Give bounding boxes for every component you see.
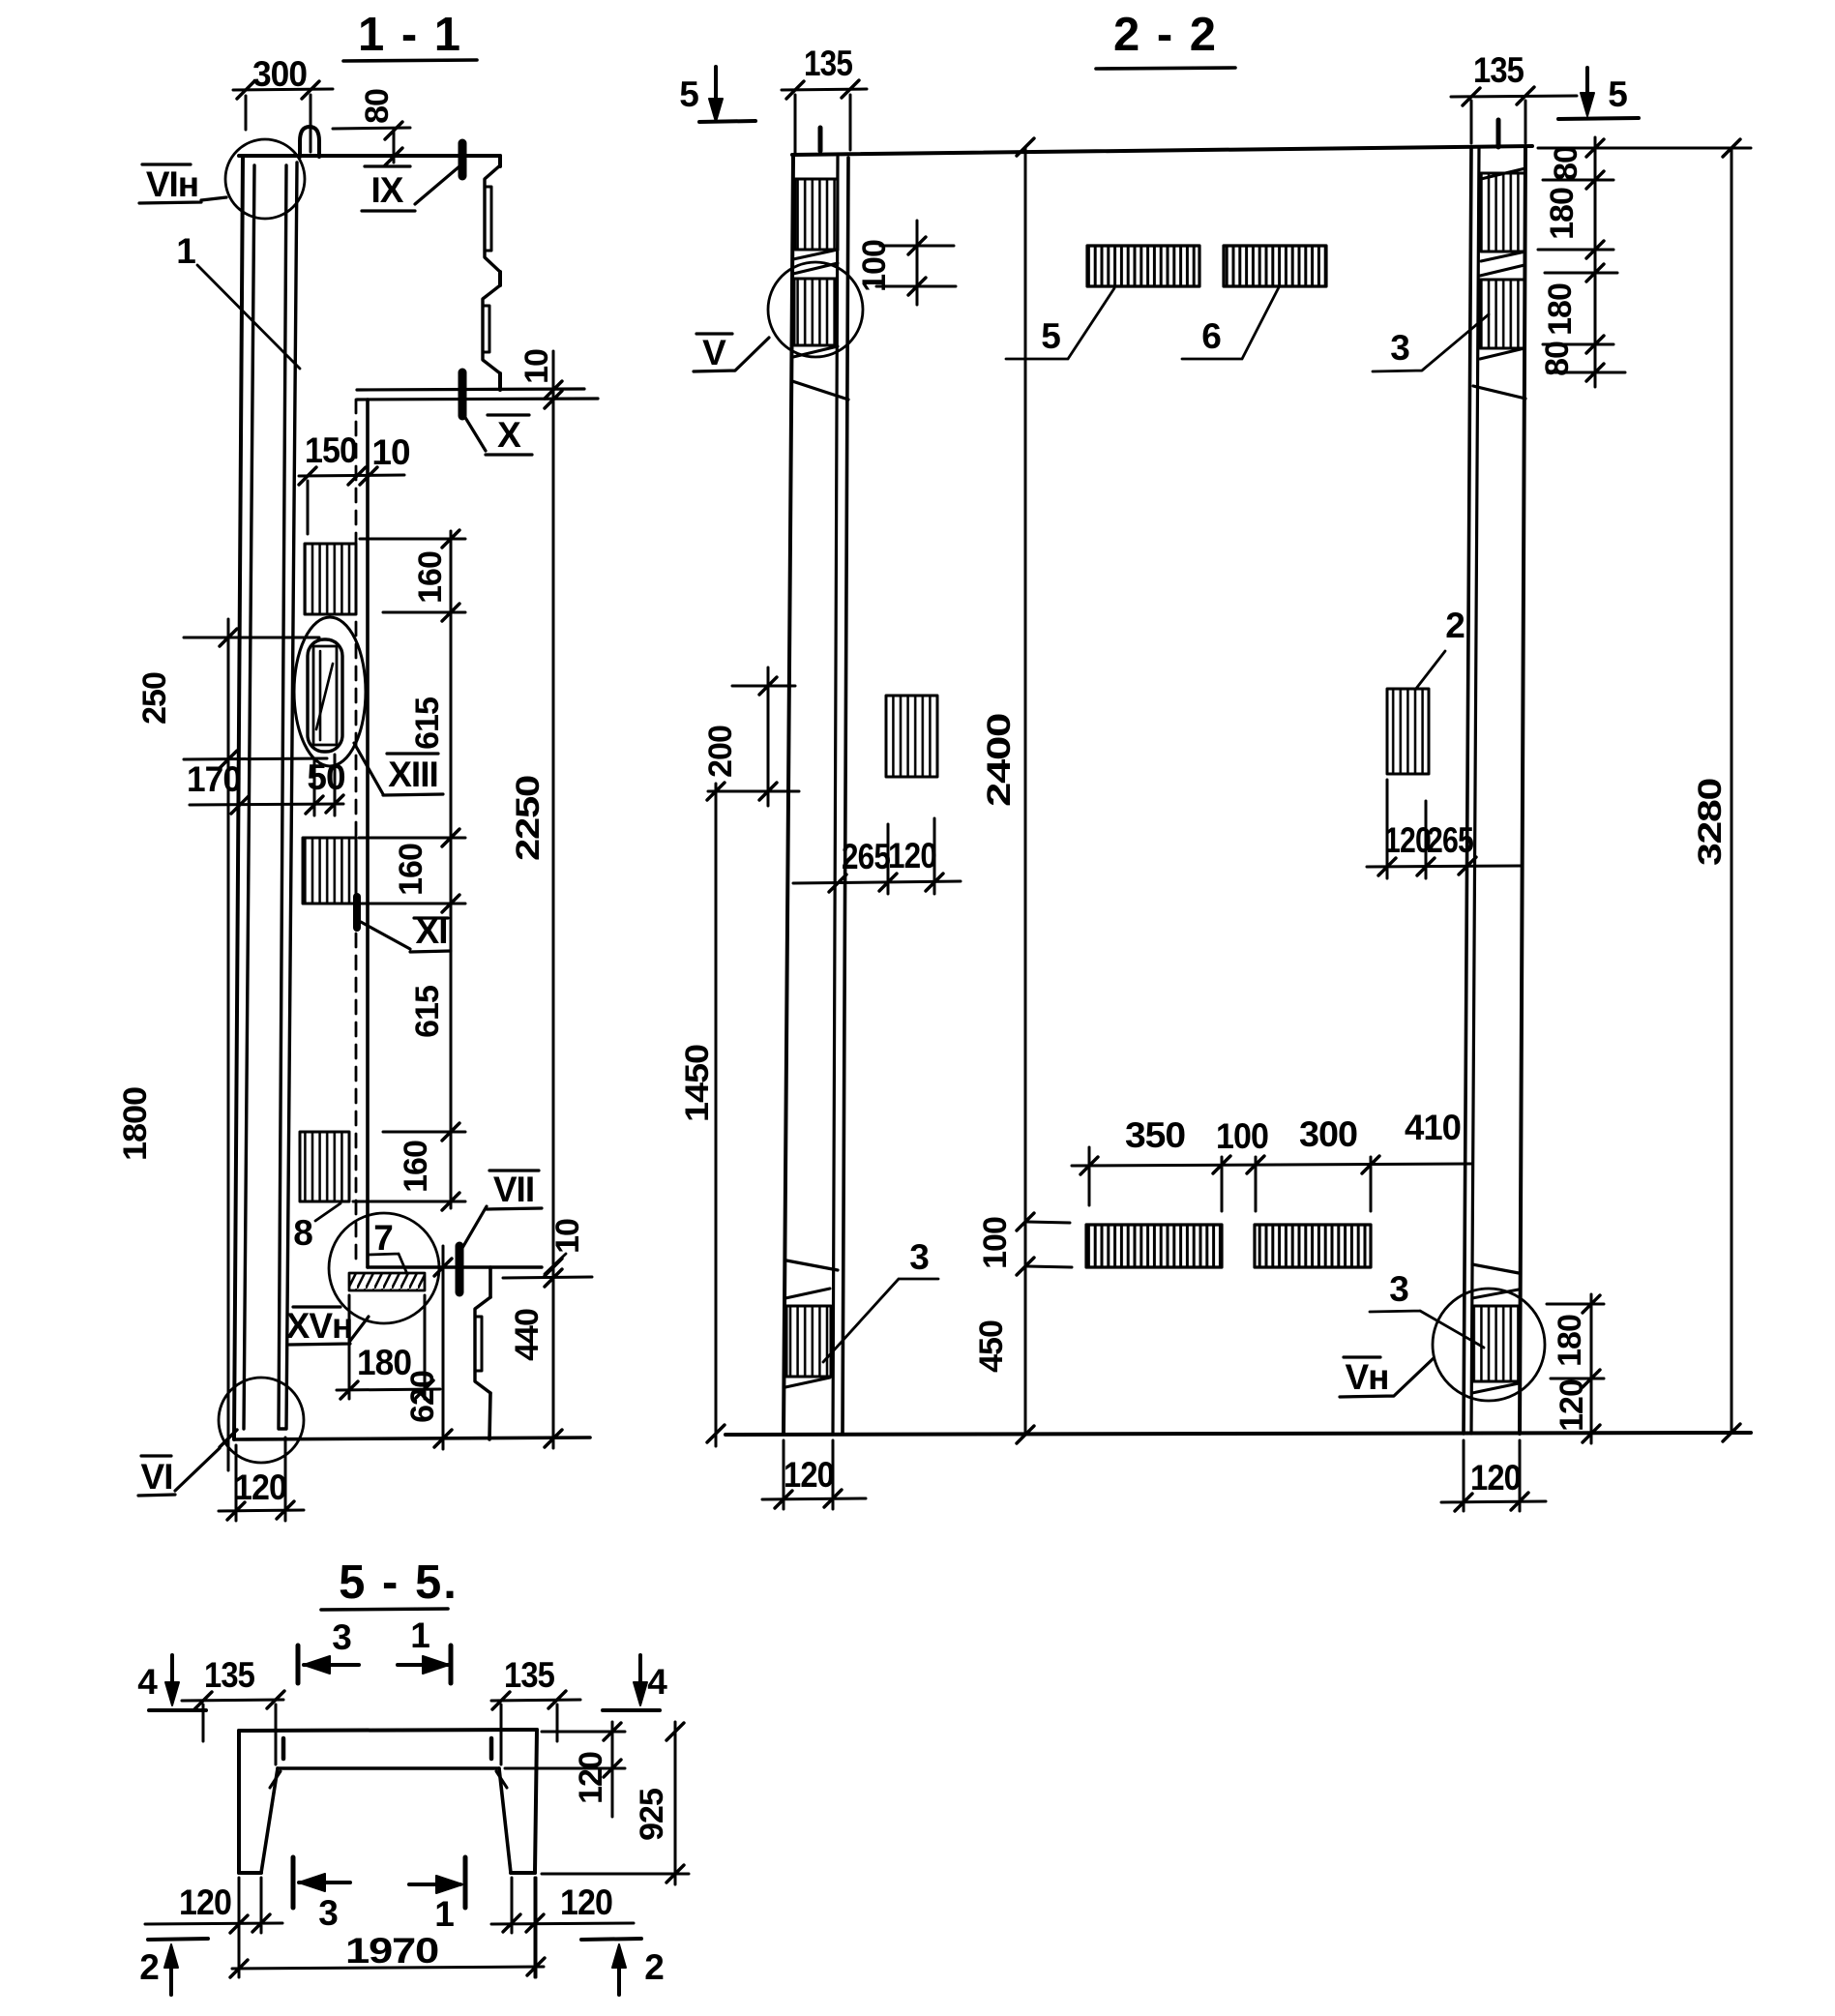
svg-text:6: 6 xyxy=(1201,316,1221,356)
svg-text:3: 3 xyxy=(909,1237,929,1277)
svg-text:3: 3 xyxy=(1390,328,1409,368)
svg-text:120: 120 xyxy=(560,1883,612,1922)
svg-text:1 - 1: 1 - 1 xyxy=(358,9,462,61)
svg-text:265: 265 xyxy=(1427,820,1473,860)
svg-text:Vн: Vн xyxy=(1345,1357,1388,1397)
svg-text:120: 120 xyxy=(1470,1458,1521,1497)
svg-text:1970: 1970 xyxy=(345,1931,439,1971)
svg-text:250: 250 xyxy=(136,672,173,725)
svg-text:1800: 1800 xyxy=(117,1087,154,1161)
svg-text:2: 2 xyxy=(139,1947,159,1987)
svg-text:100: 100 xyxy=(856,240,893,292)
svg-text:VII: VII xyxy=(493,1170,534,1209)
svg-text:10: 10 xyxy=(371,432,410,472)
svg-text:5: 5 xyxy=(679,74,698,114)
svg-text:2: 2 xyxy=(1445,606,1465,645)
svg-text:10: 10 xyxy=(518,349,555,384)
svg-text:120: 120 xyxy=(1554,1379,1590,1432)
svg-text:620: 620 xyxy=(404,1371,441,1423)
svg-text:V: V xyxy=(702,333,726,372)
svg-text:120: 120 xyxy=(888,836,936,875)
svg-text:120: 120 xyxy=(1384,820,1431,860)
svg-text:180: 180 xyxy=(1544,188,1581,240)
svg-text:180: 180 xyxy=(1542,283,1579,336)
svg-text:50: 50 xyxy=(307,757,345,797)
svg-text:4: 4 xyxy=(647,1662,667,1702)
svg-text:VIн: VIн xyxy=(146,164,198,204)
svg-text:300: 300 xyxy=(252,54,307,94)
svg-text:200: 200 xyxy=(702,726,739,778)
svg-text:440: 440 xyxy=(509,1309,546,1361)
svg-text:3280: 3280 xyxy=(1692,779,1729,866)
svg-text:2: 2 xyxy=(644,1947,664,1987)
svg-text:150: 150 xyxy=(305,430,357,470)
svg-text:XI: XI xyxy=(416,911,448,951)
svg-text:135: 135 xyxy=(504,1655,554,1695)
svg-text:X: X xyxy=(497,415,521,455)
svg-text:5: 5 xyxy=(1608,74,1627,114)
svg-text:925: 925 xyxy=(634,1789,670,1841)
svg-text:135: 135 xyxy=(204,1655,254,1695)
svg-text:2400: 2400 xyxy=(981,714,1018,807)
svg-text:2250: 2250 xyxy=(510,776,547,861)
svg-text:80: 80 xyxy=(1539,341,1576,376)
svg-text:160: 160 xyxy=(393,844,429,896)
svg-text:1: 1 xyxy=(410,1616,429,1655)
svg-text:615: 615 xyxy=(409,986,446,1038)
svg-text:615: 615 xyxy=(409,697,446,750)
svg-text:3: 3 xyxy=(318,1893,338,1933)
svg-text:7: 7 xyxy=(373,1218,393,1258)
svg-text:3: 3 xyxy=(332,1617,351,1657)
svg-text:4: 4 xyxy=(137,1662,158,1702)
svg-text:5: 5 xyxy=(1041,316,1060,356)
svg-text:1450: 1450 xyxy=(679,1045,716,1122)
svg-text:180: 180 xyxy=(357,1343,411,1382)
svg-text:180: 180 xyxy=(1552,1315,1588,1367)
svg-text:3: 3 xyxy=(1389,1269,1408,1309)
svg-text:170: 170 xyxy=(187,759,241,799)
svg-text:80: 80 xyxy=(359,89,396,124)
svg-text:120: 120 xyxy=(179,1883,231,1922)
svg-text:350: 350 xyxy=(1125,1115,1185,1155)
svg-text:135: 135 xyxy=(1473,50,1524,90)
svg-text:100: 100 xyxy=(977,1217,1014,1269)
svg-text:VI: VI xyxy=(141,1457,173,1497)
svg-text:160: 160 xyxy=(398,1141,434,1193)
svg-text:410: 410 xyxy=(1405,1108,1461,1147)
svg-text:120: 120 xyxy=(784,1455,834,1495)
svg-text:XVн: XVн xyxy=(286,1306,353,1346)
svg-text:2 - 2: 2 - 2 xyxy=(1113,9,1218,61)
svg-text:135: 135 xyxy=(804,44,852,83)
svg-text:120: 120 xyxy=(573,1752,609,1804)
svg-text:120: 120 xyxy=(234,1468,286,1507)
svg-text:8: 8 xyxy=(293,1213,312,1253)
svg-text:1: 1 xyxy=(176,231,195,271)
svg-text:5 - 5.: 5 - 5. xyxy=(339,1556,459,1609)
svg-text:300: 300 xyxy=(1299,1114,1357,1154)
svg-text:100: 100 xyxy=(1216,1116,1268,1156)
svg-text:XIII: XIII xyxy=(388,755,438,794)
svg-text:160: 160 xyxy=(412,551,449,604)
svg-text:450: 450 xyxy=(973,1320,1010,1373)
svg-text:10: 10 xyxy=(549,1219,586,1254)
svg-text:265: 265 xyxy=(842,837,890,876)
svg-text:IX: IX xyxy=(371,170,404,210)
svg-text:1: 1 xyxy=(434,1894,454,1934)
svg-text:80: 80 xyxy=(1548,146,1584,181)
